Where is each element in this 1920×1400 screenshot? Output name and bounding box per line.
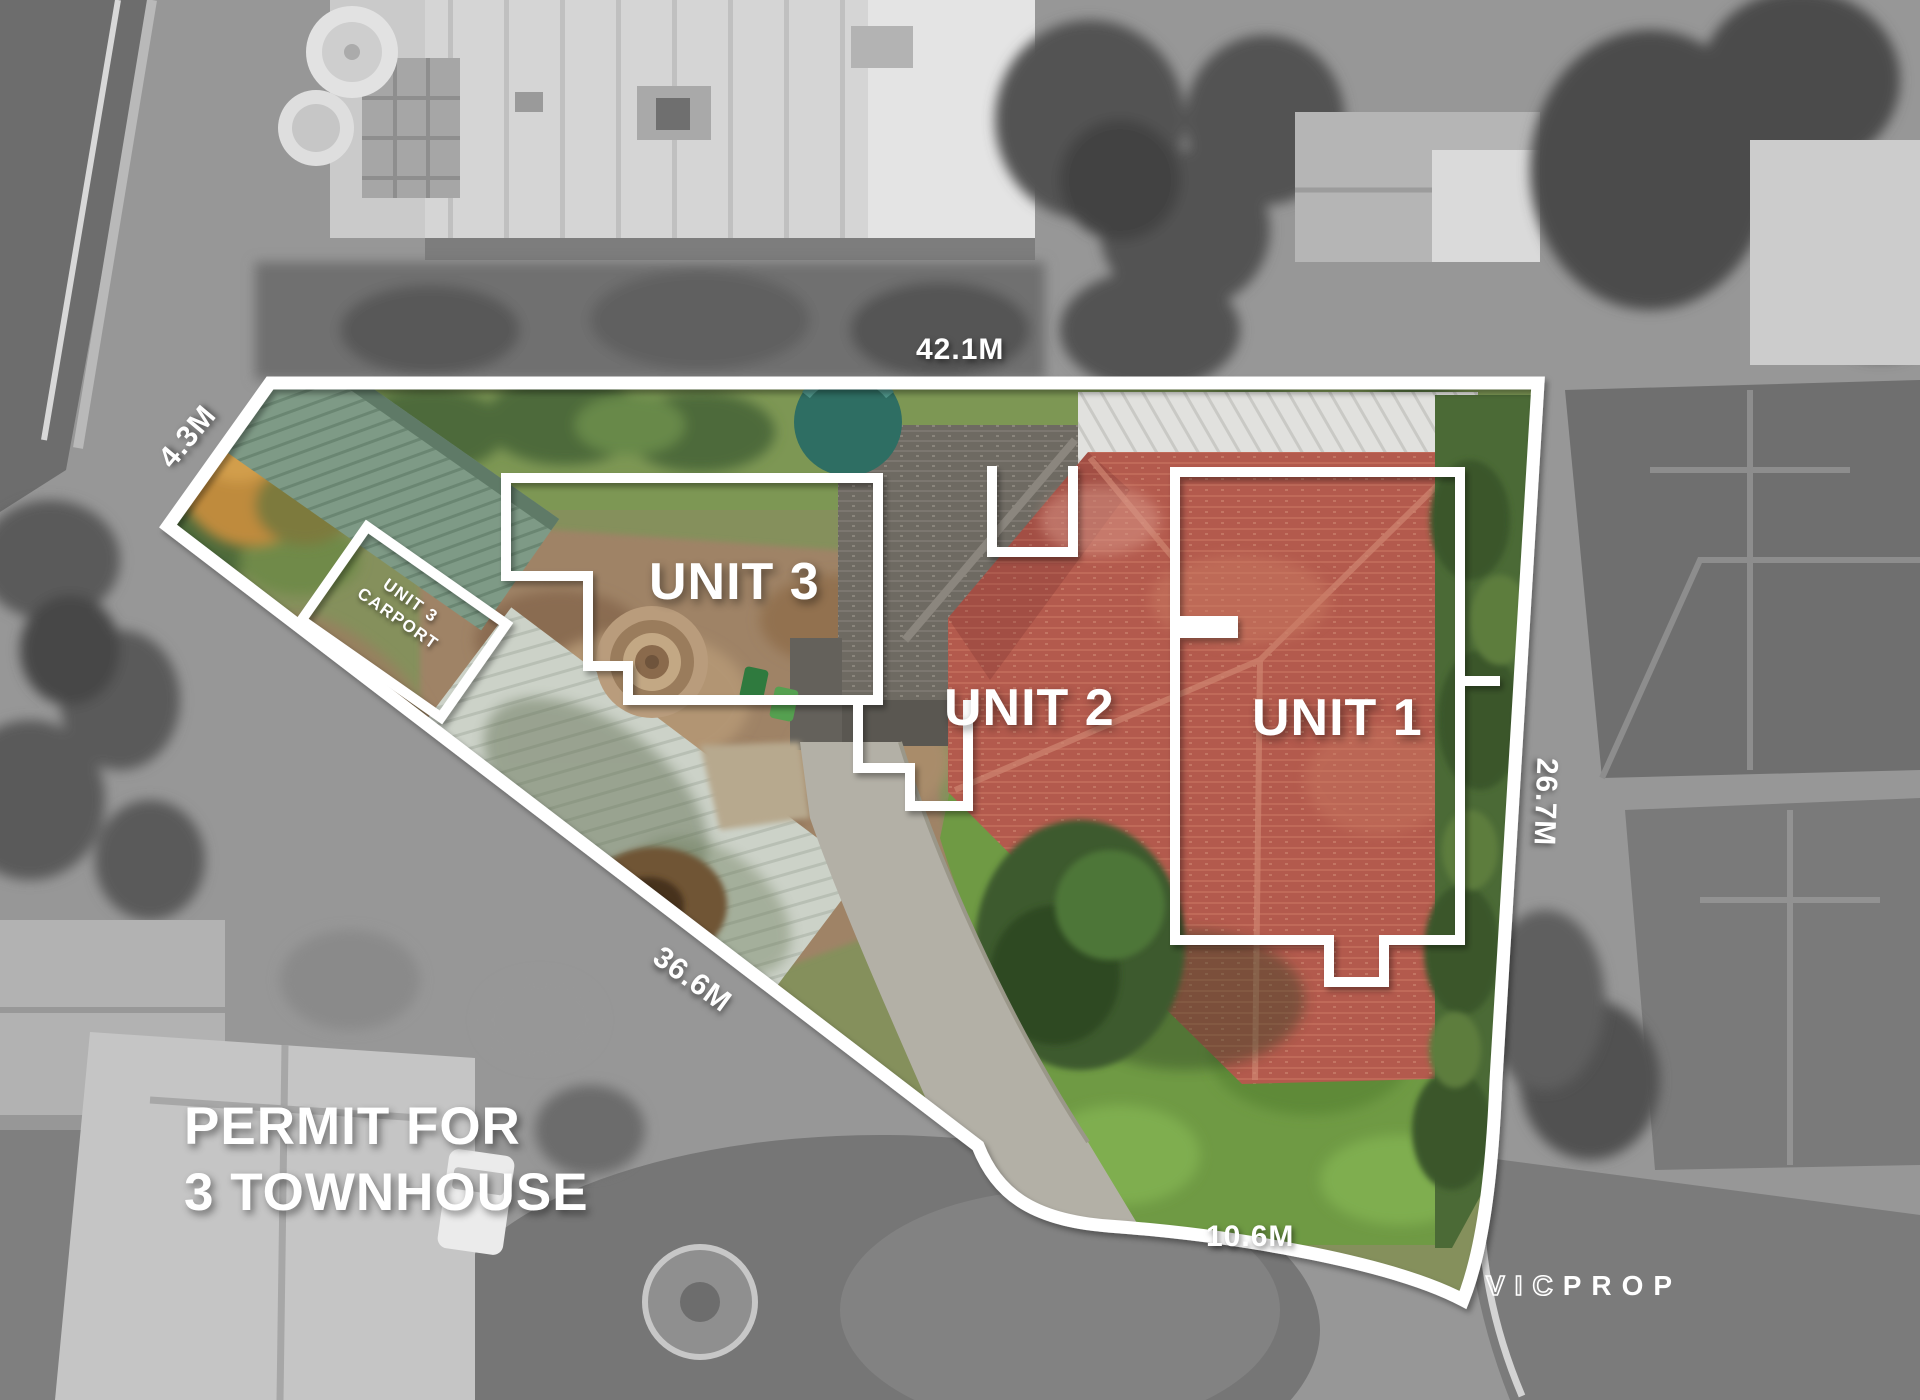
industrial-building-roof — [330, 0, 1035, 260]
unit3-label: UNIT 3 — [649, 552, 820, 612]
vicprop-logo-prefix: VIC — [1486, 1270, 1563, 1301]
measurement-north: 42.1M — [916, 333, 1004, 367]
permit-headline-line2: 3 TOWNHOUSE — [184, 1160, 589, 1226]
vicprop-logo-suffix: PROP — [1563, 1270, 1682, 1301]
permit-headline: PERMIT FOR 3 TOWNHOUSE — [184, 1094, 589, 1226]
permit-headline-line1: PERMIT FOR — [184, 1094, 589, 1160]
measurement-south: 10.6M — [1206, 1220, 1294, 1254]
aerial-site-plan: 42.1M 4.3M 26.7M 36.6M 10.6M UNIT 3 UNIT… — [0, 0, 1920, 1400]
unit2-label: UNIT 2 — [944, 678, 1115, 738]
top-right-building — [1295, 112, 1540, 262]
vicprop-logo: VICPROP — [1486, 1270, 1682, 1302]
measurement-east: 26.7M — [1526, 741, 1564, 862]
unit1-label: UNIT 1 — [1252, 688, 1423, 748]
